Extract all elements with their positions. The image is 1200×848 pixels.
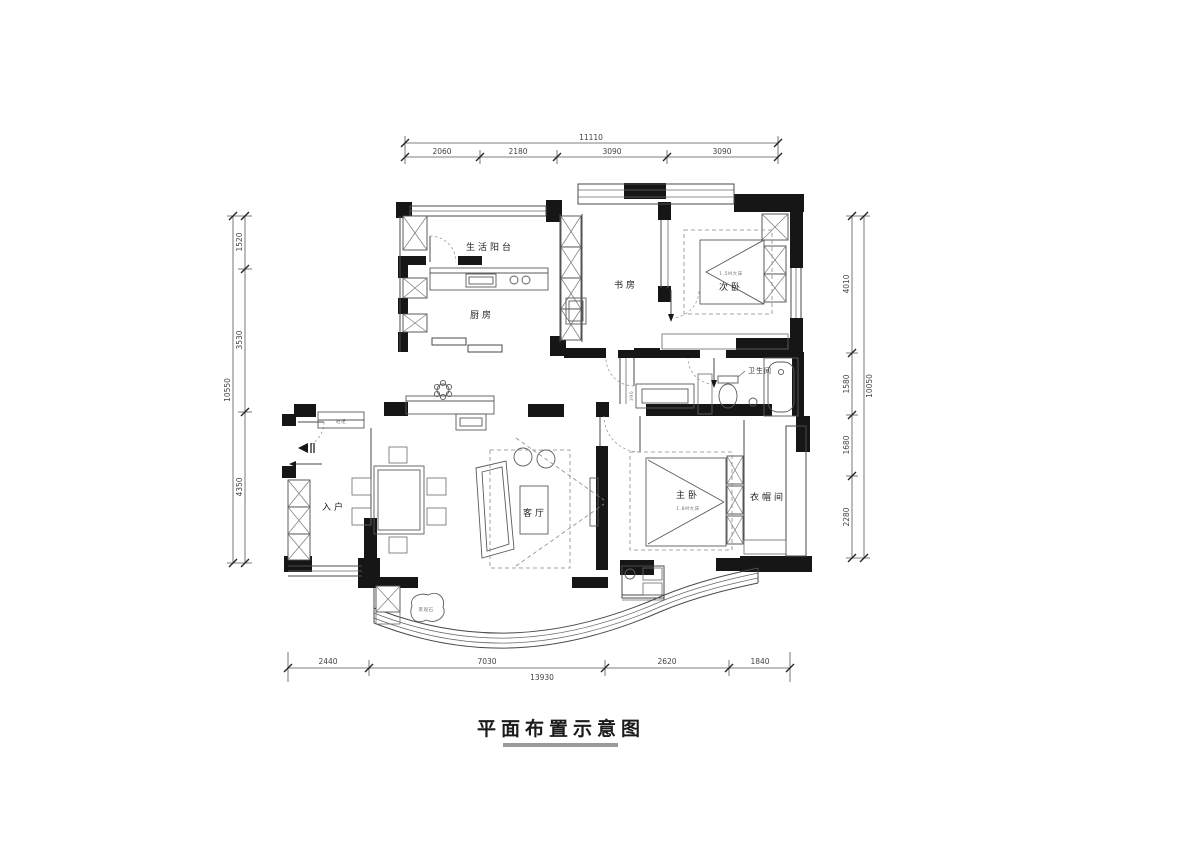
label-bathroom: 卫生间 <box>748 366 772 375</box>
dim-top-total: 11110 <box>579 133 603 142</box>
dim-bottom-seg3: 2620 <box>657 657 676 666</box>
dim-top-seg3: 3090 <box>602 147 621 156</box>
dimension-bottom: 2440 7030 2620 1840 13930 <box>284 652 794 682</box>
dim-top-seg1: 2060 <box>432 147 451 156</box>
label-master-bed-size: 1.8M大床 <box>676 505 699 512</box>
label-kitchen: 厨房 <box>470 309 494 321</box>
label-shoe-cabinet: 鞋柜 <box>336 418 346 425</box>
label-master-bedroom: 主卧 <box>676 489 700 501</box>
dimension-right: 4010 1580 1680 2280 10050 <box>842 212 874 562</box>
dim-left-seg1: 1520 <box>235 232 244 251</box>
page-title: 平面布置示意图 <box>477 717 645 740</box>
dim-right-seg1: 4010 <box>842 274 851 293</box>
master-bed <box>630 452 732 550</box>
label-cloakroom: 衣帽间 <box>750 491 786 503</box>
kitchen-counter <box>430 268 548 290</box>
title-underline <box>503 743 618 747</box>
dim-bottom-total: 13930 <box>530 673 554 682</box>
dim-right-seg3: 1680 <box>842 435 851 454</box>
dimension-left: 1520 3530 4350 10550 <box>223 212 252 567</box>
stool-icon <box>434 380 451 399</box>
label-second-bed-size: 1.5M大床 <box>719 270 742 277</box>
dim-top-seg4: 3090 <box>712 147 731 156</box>
dimension-top: 11110 2060 2180 3090 3090 <box>401 133 782 164</box>
bar-counter <box>406 396 494 430</box>
entry-arrow-icon <box>298 443 308 453</box>
sofa <box>476 461 514 558</box>
room-labels: 生活阳台 厨房 书房 次卧 卫生间 主卧 衣帽间 入户 客厅 1.5M大床 1.… <box>322 241 786 613</box>
toilet-icon <box>718 376 738 408</box>
dim-left-seg3: 4350 <box>235 477 244 496</box>
label-niche-width: 390 <box>629 391 635 401</box>
label-study: 书房 <box>614 279 638 291</box>
label-entry: 入户 <box>322 501 346 513</box>
dim-bottom-seg2: 7030 <box>477 657 496 666</box>
floor-plan-canvas: 生活阳台 厨房 书房 次卧 卫生间 主卧 衣帽间 入户 客厅 1.5M大床 1.… <box>0 0 1200 848</box>
label-stone: 景观石 <box>418 607 433 613</box>
label-service-balcony: 生活阳台 <box>466 241 514 253</box>
dim-right-seg2: 1580 <box>842 374 851 393</box>
dim-left-seg2: 3530 <box>235 330 244 349</box>
dim-left-total: 10550 <box>223 378 232 402</box>
dim-bottom-seg1: 2440 <box>318 657 337 666</box>
label-living-room: 客厅 <box>523 507 547 519</box>
dim-right-seg4: 2280 <box>842 507 851 526</box>
dim-top-seg2: 2180 <box>508 147 527 156</box>
dim-right-total: 10050 <box>865 374 874 398</box>
floor-plan-page: 生活阳台 厨房 书房 次卧 卫生间 主卧 衣帽间 入户 客厅 1.5M大床 1.… <box>0 0 1200 848</box>
hatch-bands <box>643 334 806 595</box>
dim-bottom-seg4: 1840 <box>750 657 769 666</box>
label-second-bedroom: 次卧 <box>719 281 743 293</box>
drawing-title: 平面布置示意图 <box>477 717 645 747</box>
pouf-icon <box>514 448 532 466</box>
